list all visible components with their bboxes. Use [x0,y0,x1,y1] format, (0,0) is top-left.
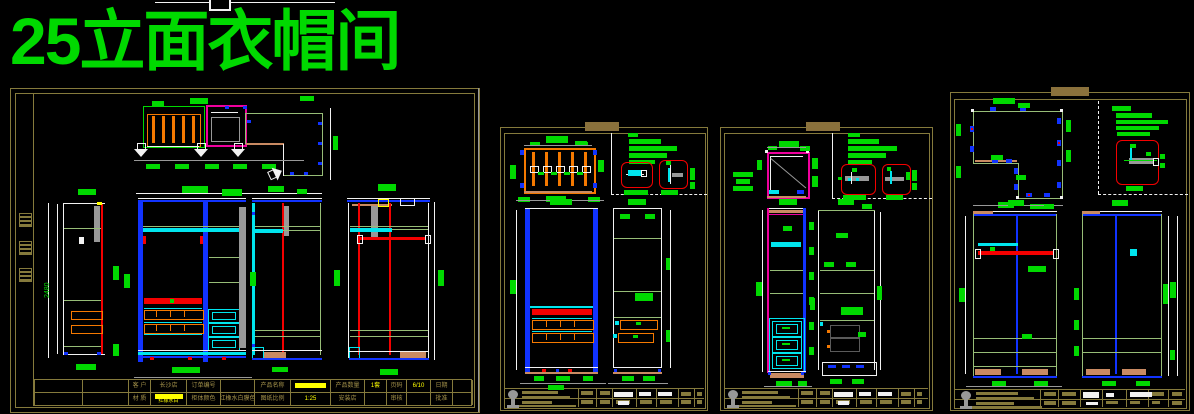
cad-geometry [378,199,389,207]
cad-geometry [1066,120,1071,132]
cad-geometry [633,335,638,338]
cad-geometry [993,98,1015,104]
cad-geometry [628,133,638,137]
cad-geometry [538,172,544,175]
cad-geometry [1066,150,1071,162]
cad-geometry [1022,334,1032,339]
cad-geometry [348,203,349,358]
cad-geometry [834,392,853,397]
cad-geometry [959,288,965,302]
cad-geometry [757,160,762,170]
cad-geometry [611,133,612,194]
titleblock-cell: 材 质 [129,393,151,406]
cad-geometry [245,113,246,144]
cad-geometry [226,189,238,194]
cad-geometry [1016,216,1018,374]
cad-geometry [434,202,435,360]
cad-geometry [1126,186,1143,191]
cad-geometry [349,358,429,360]
cad-geometry [333,136,338,150]
cad-geometry [1161,214,1162,376]
cad-geometry [1130,144,1136,148]
cad-geometry [1122,369,1146,375]
cad-geometry [371,206,378,238]
cad-geometry [1126,389,1127,407]
cad-geometry [670,210,671,368]
cad-geometry [1163,284,1168,304]
cad-geometry [392,229,428,230]
cad-geometry [532,333,594,343]
cad-geometry [827,330,830,333]
cad-geometry [720,127,721,411]
cad-geometry [974,352,1056,353]
cad-geometry [1160,154,1165,159]
cad-geometry [520,183,524,188]
cad-geometry [334,270,340,286]
cad-geometry [222,357,226,360]
cad-geometry [608,383,668,384]
cad-geometry [776,356,798,366]
cad-geometry [252,350,322,351]
cad-geometry [643,376,655,381]
cad-geometry [768,208,806,209]
cad-geometry [268,186,284,192]
cad-geometry [852,168,857,172]
cad-viewport[interactable]: 25立面衣帽间 2480 客 户长沙店订单编号产品名称产品数量1套页码6/10日… [0,0,1194,414]
cad-geometry [138,198,246,199]
cad-geometry [838,177,842,180]
cad-geometry [840,127,932,128]
cad-geometry [574,321,575,327]
cad-geometry [1057,182,1061,188]
cad-geometry [255,336,320,337]
cad-geometry [63,203,64,355]
cad-geometry [1152,401,1160,404]
titleblock-cell [407,393,431,406]
cad-geometry [782,327,790,329]
cad-geometry [809,347,814,355]
cad-geometry [1172,392,1182,396]
cad-geometry [639,392,651,396]
cad-geometry [932,127,933,411]
cad-geometry [593,183,597,188]
cad-geometry [1082,211,1100,214]
titleblock-cell: 6/10 [407,380,431,393]
cad-geometry [620,214,630,219]
cad-geometry [640,400,652,404]
cad-geometry [901,392,911,396]
cad-geometry [978,243,1018,246]
cad-geometry [255,330,320,331]
elevation-marker-icon [134,143,148,158]
cad-geometry [858,332,866,337]
cad-geometry [624,190,648,195]
cad-geometry [1129,158,1154,164]
cad-geometry [614,317,661,318]
cad-geometry [707,127,708,411]
cad-geometry [581,391,593,395]
cad-geometry [1112,200,1128,206]
cad-geometry [556,376,570,381]
cad-geometry [255,226,320,227]
cad-geometry [1060,196,1063,199]
cad-geometry [514,405,576,407]
cad-geometry [134,377,252,378]
cad-geometry [583,376,593,381]
cad-geometry [522,396,570,399]
cad-geometry [668,168,670,182]
cad-geometry [500,127,585,128]
cad-geometry [956,124,961,136]
cad-geometry [1115,216,1117,374]
cad-geometry [973,211,993,214]
cad-geometry [1016,175,1026,180]
cad-geometry [144,308,202,309]
cad-geometry [770,156,771,191]
cad-geometry [901,400,911,404]
cad-geometry [20,269,31,281]
cad-geometry [1018,103,1030,108]
cad-geometry [143,236,146,244]
cad-geometry [438,270,444,286]
cad-geometry [1044,204,1054,209]
titleblock-cell: 审核 [387,393,407,406]
cad-geometry [478,88,479,412]
cad-geometry [1022,369,1048,375]
cad-geometry [560,334,561,340]
cad-geometry [976,402,1014,405]
cad-geometry [1082,376,1162,378]
cad-geometry [172,116,175,143]
cad-geometry [188,357,192,360]
cad-geometry [1044,392,1056,396]
cad-geometry [812,158,818,169]
cad-geometry [246,143,284,145]
cad-geometry [1146,152,1151,156]
cad-geometry [1136,381,1150,386]
cad-geometry [1057,118,1061,124]
cad-geometry [950,92,951,411]
sheet1-title-block: 客 户长沙店订单编号产品名称产品数量1套页码6/10日期材 质红橡水白柜体颜色红… [34,379,472,406]
cad-geometry [848,178,851,181]
cad-geometry [820,400,830,404]
cad-geometry [190,98,208,104]
cad-geometry [360,237,426,240]
cad-geometry [152,116,155,143]
cad-geometry [976,397,1034,400]
cad-geometry [880,400,892,404]
cad-geometry [534,376,544,381]
cad-geometry [767,147,806,148]
cad-geometry [917,392,922,396]
cad-geometry [113,266,119,280]
cad-geometry [532,309,592,315]
cad-geometry [971,109,974,112]
cad-geometry [560,321,561,327]
cad-geometry [1083,338,1161,339]
cad-geometry [598,160,604,172]
cad-geometry [283,230,320,231]
cad-geometry [320,203,321,355]
cad-geometry [818,210,819,370]
cad-geometry [859,392,871,396]
cad-geometry [841,307,863,315]
titleblock-cell [83,380,129,393]
cad-geometry [912,183,917,190]
cad-geometry [76,364,96,370]
cad-geometry [1028,194,1030,196]
window-top-edge [155,2,335,3]
cad-geometry [832,133,833,198]
cad-geometry [1082,214,1162,216]
cad-geometry [1130,401,1140,404]
cad-geometry [1189,92,1190,411]
cad-geometry [500,410,708,411]
cad-geometry [1106,401,1118,404]
cad-geometry [1018,163,1019,198]
cad-geometry [318,122,322,125]
cad-geometry [243,106,247,109]
cad-geometry [670,164,671,184]
cad-geometry [1168,389,1169,407]
elevation-marker-icon [194,143,208,158]
cad-geometry [349,351,429,352]
cad-geometry [144,334,202,335]
cad-geometry [733,172,753,177]
cad-geometry [1044,401,1056,405]
cad-geometry [681,392,691,396]
cad-geometry [1083,352,1161,353]
cad-geometry [97,202,102,205]
titleblock-cell: 1:25 [291,393,331,406]
cad-geometry [530,306,593,308]
cad-geometry [283,175,323,176]
cad-geometry [184,325,185,331]
cad-geometry [678,388,679,407]
titleblock-cell: 安装店 [331,393,365,406]
cad-geometry [820,293,874,294]
cad-geometry [245,113,323,114]
cad-geometry [629,146,677,151]
cad-geometry [252,212,255,215]
cad-geometry [877,286,882,300]
cad-geometry [290,172,294,175]
cad-geometry [906,172,910,180]
cad-geometry [170,311,171,317]
cad-geometry [300,96,314,101]
titleblock-cell [83,393,129,406]
cad-geometry [968,406,1042,408]
cad-geometry [78,189,96,195]
cad-geometry [211,112,238,113]
cad-geometry [830,379,842,384]
cad-geometry [64,346,101,347]
cad-geometry [779,199,797,205]
cad-geometry [600,391,610,395]
cad-geometry [769,190,779,194]
cad-geometry [350,336,428,337]
cad-geometry [1062,401,1076,405]
cad-geometry [252,358,322,360]
cad-geometry [742,396,790,399]
cad-geometry [973,214,1057,216]
cad-geometry [806,122,840,131]
cad-geometry [520,150,524,155]
cad-geometry [690,168,695,180]
titleblock-cell [453,393,473,406]
cad-geometry [768,210,806,213]
cad-geometry [613,334,617,338]
cad-geometry [33,93,34,406]
cad-geometry [522,391,558,394]
cad-geometry [297,189,307,194]
cad-geometry [1160,163,1165,168]
cad-geometry [211,117,240,142]
cad-geometry [672,173,683,177]
titleblock-cell [221,380,255,393]
cad-geometry [525,367,598,368]
cad-geometry [170,325,171,331]
cad-geometry [581,400,593,404]
cad-geometry [860,400,872,404]
cad-geometry [770,373,804,378]
cad-geometry [1057,160,1061,166]
cad-geometry [827,345,830,348]
cad-geometry [629,153,667,158]
cad-geometry [247,120,251,123]
cad-geometry [1014,184,1018,190]
cad-geometry [1028,266,1046,272]
cad-geometry [734,405,796,407]
cad-geometry [200,236,203,244]
cad-geometry [596,388,597,407]
cad-geometry [965,216,966,374]
cad-geometry [848,139,879,144]
cad-geometry [809,247,814,255]
cad-geometry [532,318,592,319]
cad-geometry [546,334,547,340]
cad-geometry [974,338,1056,339]
cad-geometry [782,359,790,361]
cad-geometry [350,226,428,227]
cad-geometry [1106,393,1114,397]
cad-geometry [1006,159,1012,163]
cad-geometry [619,127,707,128]
cad-geometry [252,200,322,202]
cad-geometry [812,176,818,187]
cad-geometry [836,233,848,238]
cad-geometry [658,369,661,372]
cad-geometry [350,330,428,331]
cad-geometry [762,210,763,372]
cad-geometry [764,386,812,387]
cad-geometry [661,208,662,368]
cad-geometry [614,392,633,397]
cad-geometry [175,164,189,169]
cad-geometry [97,352,101,355]
cad-geometry [851,172,852,184]
cad-geometry [801,372,804,375]
cad-geometry [156,325,157,331]
cad-geometry [600,400,610,404]
cad-geometry [205,164,219,169]
cad-geometry [613,208,662,209]
cad-geometry [973,376,1057,378]
cad-geometry [890,171,892,184]
cad-geometry [57,204,58,354]
cad-geometry [820,270,874,271]
cad-geometry [856,178,859,181]
cad-geometry [162,116,165,143]
cad-geometry [578,388,579,407]
cad-geometry [658,392,672,396]
cad-geometry [524,191,592,193]
cad-geometry [838,401,849,405]
cad-geometry [622,376,634,381]
cad-geometry [990,107,996,111]
titleblock-cell: 产品名称 [255,380,291,393]
cad-geometry [852,379,864,384]
cad-geometry [255,229,283,233]
cad-geometry [520,383,606,384]
cad-geometry [832,388,833,407]
cad-geometry [898,388,899,407]
cad-geometry [615,321,619,325]
titleblock-cell [453,380,473,393]
cad-geometry [94,206,100,242]
titleblock-cell: 批准 [431,393,453,406]
cad-geometry [504,388,704,389]
cad-geometry [138,352,246,355]
cad-geometry [618,401,629,405]
cad-geometry [975,369,1001,375]
cad-geometry [612,388,613,407]
cad-geometry [1051,87,1089,96]
cad-geometry [1083,392,1099,398]
cad-geometry [887,167,891,171]
cad-geometry [1102,381,1116,386]
cad-geometry [628,170,641,176]
cad-geometry [532,320,594,330]
cad-geometry [830,338,860,352]
cad-geometry [782,343,790,345]
cad-geometry [917,400,922,404]
titleblock-cell: 红橡水白 [151,393,187,406]
cad-geometry [971,128,973,130]
cad-geometry [990,247,995,251]
cad-geometry [856,365,864,368]
cad-geometry [1060,109,1063,112]
cad-geometry [20,242,31,254]
cad-geometry [532,331,592,332]
cad-geometry [284,206,289,236]
titleblock-cell [35,393,83,406]
cad-geometry [525,208,530,372]
cad-geometry [697,392,702,396]
cad-geometry [585,122,619,131]
cad-geometry [182,186,208,193]
cad-geometry [842,365,850,368]
cad-geometry [378,184,396,191]
cad-geometry [824,262,834,267]
cad-geometry [878,392,892,396]
cad-geometry [152,101,164,106]
cad-geometry [733,186,753,191]
cad-geometry [1058,142,1060,144]
cad-geometry [546,321,547,327]
cad-geometry [150,357,154,360]
cad-geometry [874,210,875,370]
